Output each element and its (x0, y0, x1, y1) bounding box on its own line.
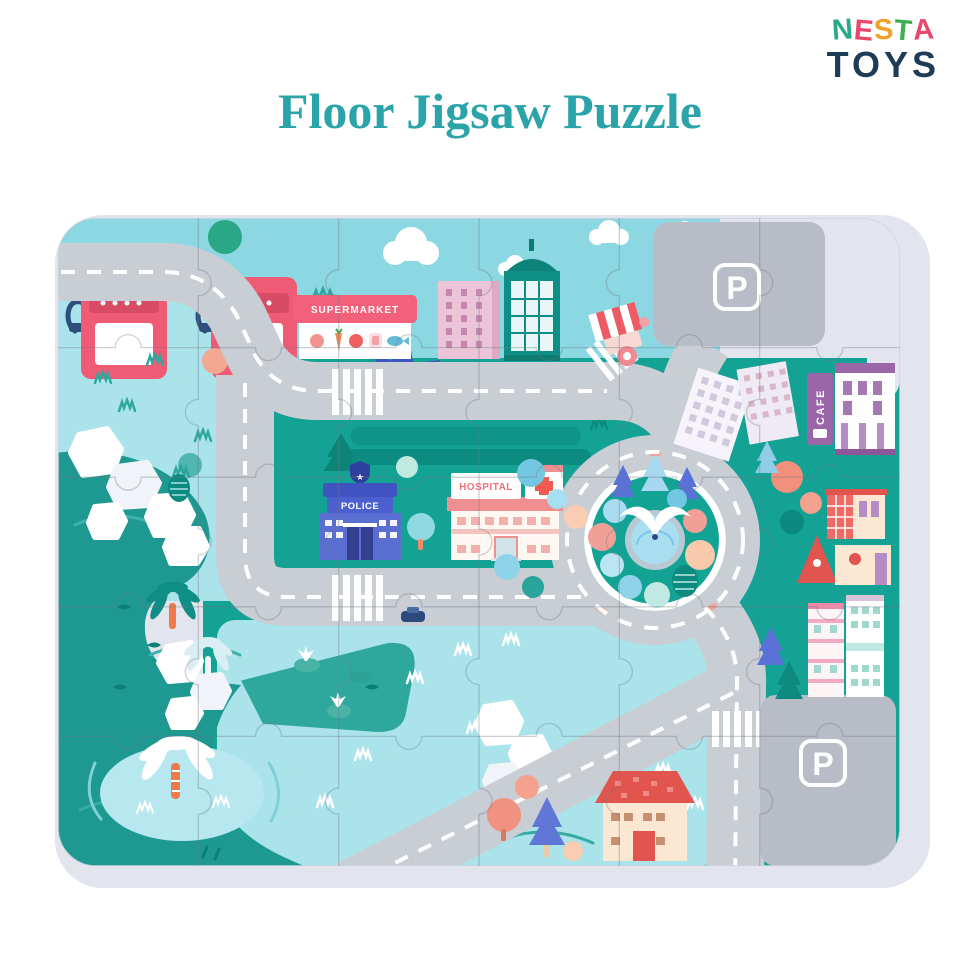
logo-word-toys: TOYS (827, 47, 940, 83)
logo-letter: N (831, 15, 855, 45)
logo-letter: E (852, 16, 875, 47)
cafe-building: CAFE (807, 363, 895, 455)
page-title: Floor Jigsaw Puzzle (0, 82, 980, 140)
supermarket-sign: SUPERMARKET (311, 305, 399, 316)
logo-letter: T (893, 16, 914, 47)
logo-letter: S (873, 15, 895, 45)
parking-sign-bottom: P (812, 746, 833, 782)
hospital-building: HOSPITAL (447, 465, 563, 561)
logo-letter: A (912, 15, 936, 45)
supermarket-building: SUPERMARKET (293, 295, 417, 359)
logo-word-nesta: NESTA (827, 16, 940, 45)
police-sign: POLICE (341, 501, 379, 512)
puzzle-illustration: P P SUPERMARKET (55, 215, 930, 888)
parking-sign-top: P (726, 270, 747, 306)
nesta-toys-logo: NESTA TOYS (827, 16, 940, 83)
parking-lot-top: P (653, 222, 825, 346)
product-image: { "logo": { "nesta": [ {"char": "N", "co… (0, 0, 980, 980)
parking-lot-bottom: P (760, 695, 896, 866)
bottom-house (595, 771, 695, 861)
cafe-sign: CAFE (815, 389, 827, 425)
checkered-building (825, 489, 887, 539)
hospital-sign: HOSPITAL (459, 482, 513, 493)
puzzle-board-image: P P SUPERMARKET (55, 215, 930, 888)
